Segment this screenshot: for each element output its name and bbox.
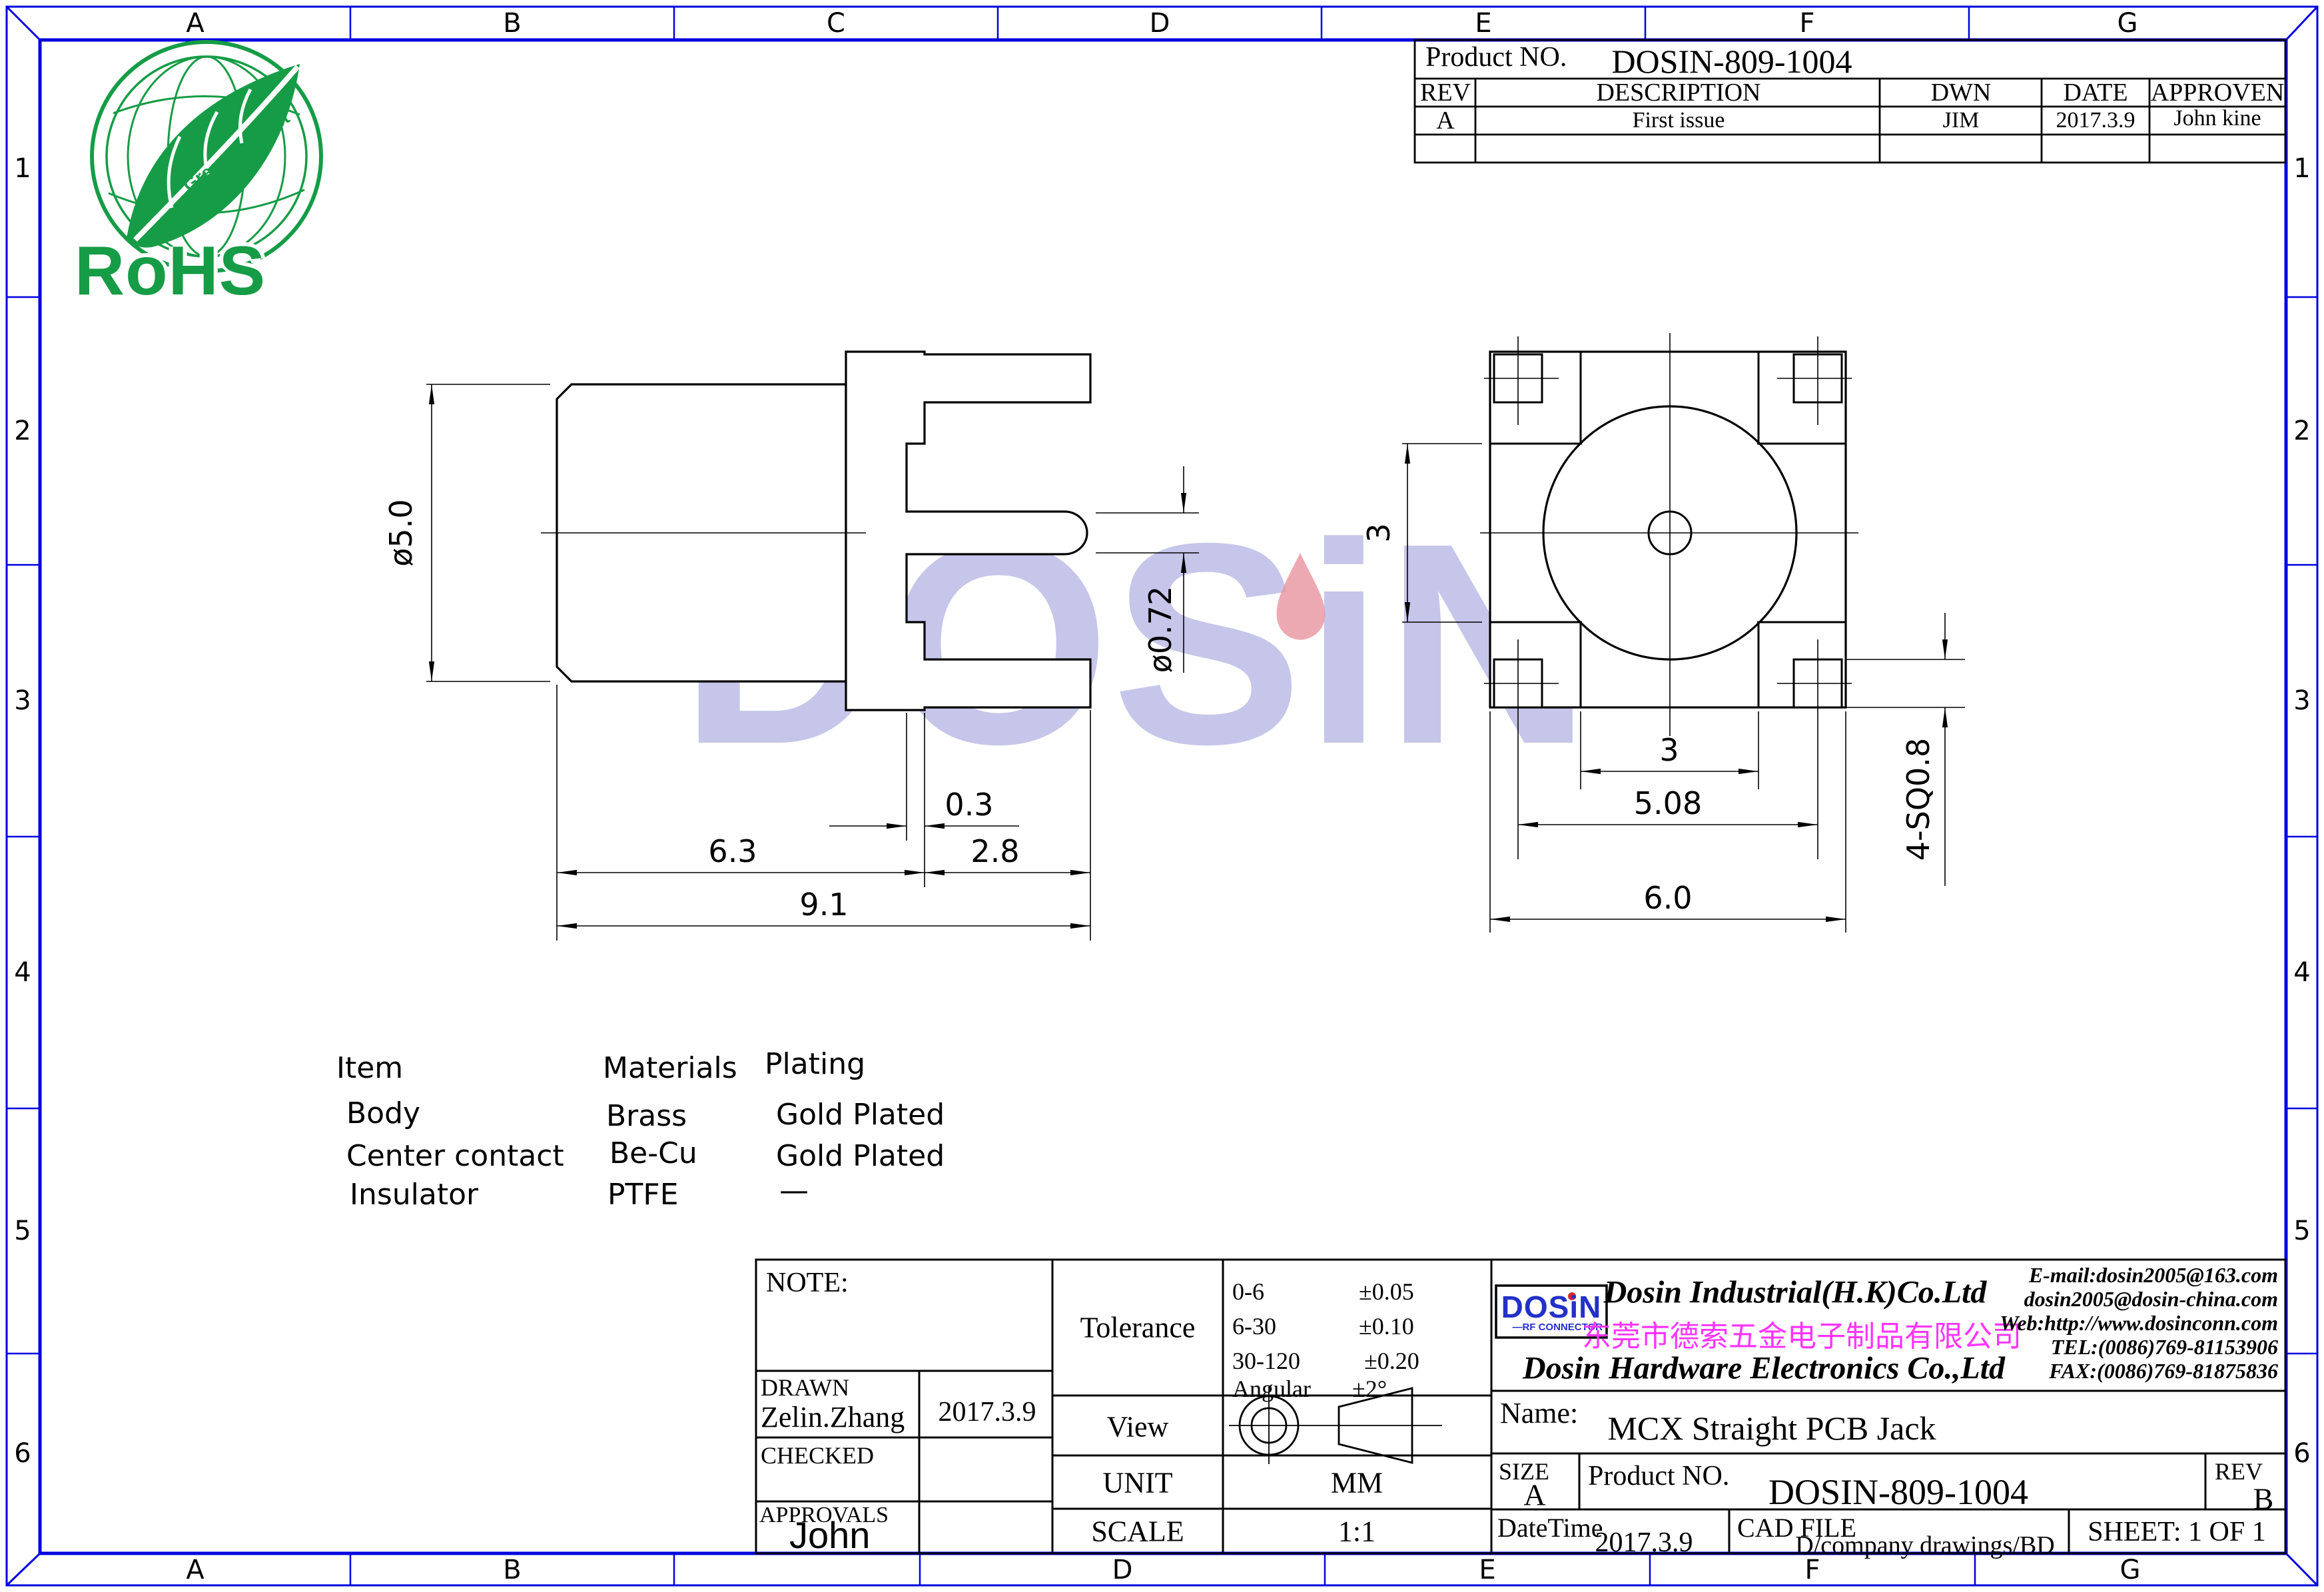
flange-and-pins	[846, 352, 1090, 710]
datetime-value: 2017.3.9	[1595, 1527, 1693, 1559]
company-name-en1: Dosin Industrial(H.K)Co.Ltd	[1604, 1274, 1987, 1311]
materials-insulator-plating: —	[779, 1174, 809, 1208]
grid-label-left-6: 6	[14, 1438, 31, 1469]
grid-label-bottom-d: D	[1112, 1555, 1133, 1585]
scale-label: SCALE	[1091, 1515, 1184, 1549]
contact-email-1: E-mail:dosin2005@163.com	[1992, 1263, 2278, 1288]
grid-label-bottom-g: G	[2120, 1555, 2141, 1585]
materials-body-plating: Gold Plated	[776, 1098, 945, 1132]
unit-value: MM	[1331, 1466, 1383, 1500]
tol-range-4: Angular	[1232, 1375, 1311, 1403]
side-view	[426, 352, 1199, 941]
approvals-name: John	[789, 1513, 870, 1557]
drawn-name: Zelin.Zhang	[761, 1400, 905, 1434]
flame-icon	[1277, 553, 1326, 639]
dim-label-h3: 3	[1659, 732, 1679, 768]
rev-row-rev: A	[1436, 106, 1454, 135]
rev-header-description: DESCRIPTION	[1596, 78, 1760, 107]
unit-label: UNIT	[1102, 1466, 1172, 1500]
contact-tel: TEL:(0086)769-81153906	[1992, 1335, 2278, 1360]
company-name-cn: 东莞市德索五金电子制品有限公司	[1582, 1312, 2022, 1355]
grid-label-top-b: B	[503, 8, 521, 39]
rev-product-label: Product NO.	[1425, 41, 1567, 73]
grid-label-top-f: F	[1799, 8, 1814, 39]
materials-header-item: Item	[336, 1051, 403, 1085]
contact-web: Web:http://www.dosinconn.com	[1992, 1311, 2278, 1336]
rohs-title: RoHS	[75, 232, 266, 311]
materials-contact-item: Center contact	[346, 1139, 564, 1173]
checked-label: CHECKED	[761, 1441, 874, 1469]
dim-v3	[1402, 444, 1482, 622]
dim-label-03: 0.3	[945, 787, 993, 823]
cad-file-value: D/company drawings/BD	[1795, 1531, 2054, 1560]
dim-label-dia5: ø5.0	[383, 499, 419, 566]
rev-header-approven: APPROVEN	[2151, 78, 2285, 107]
rev-row-date: 2017.3.9	[2056, 108, 2135, 133]
dim-label-28: 2.8	[970, 833, 1019, 869]
rev-product-value: DOSIN-809-1004	[1611, 42, 1852, 81]
tol-value-1: ±0.05	[1359, 1278, 1414, 1306]
materials-header-plating: Plating	[765, 1047, 865, 1081]
rev-value: B	[2253, 1481, 2274, 1517]
rev-header-dwn: DWN	[1931, 78, 1992, 107]
grid-label-top-e: E	[1475, 8, 1491, 39]
tol-value-4: ±2°	[1352, 1375, 1387, 1403]
materials-header-materials: Materials	[603, 1051, 737, 1085]
grid-label-bottom-b: B	[503, 1555, 521, 1585]
grid-separators-bottom	[350, 1553, 1975, 1585]
view-label: View	[1107, 1410, 1169, 1444]
rev-header-date: DATE	[2063, 78, 2128, 107]
grid-label-left-4: 4	[14, 957, 31, 988]
grid-label-right-2: 2	[2293, 416, 2310, 446]
materials-body-material: Brass	[606, 1099, 687, 1133]
grid-label-top-g: G	[2118, 8, 2138, 39]
tol-value-3: ±0.20	[1364, 1347, 1419, 1375]
grid-label-top-c: C	[827, 8, 845, 39]
grid-label-left-1: 1	[14, 153, 31, 184]
grid-label-left-3: 3	[14, 685, 31, 716]
datetime-label: DateTime	[1497, 1512, 1603, 1543]
product-no-value: DOSIN-809-1004	[1768, 1471, 2028, 1513]
dim-label-dia072: ø0.72	[1142, 586, 1178, 673]
grid-label-top-d: D	[1150, 8, 1170, 39]
tol-range-2: 6-30	[1232, 1312, 1276, 1340]
tol-range-3: 30-120	[1232, 1347, 1300, 1375]
note-label: NOTE:	[766, 1267, 849, 1299]
grid-label-bottom-a: A	[186, 1555, 204, 1585]
grid-label-bottom-e: E	[1479, 1555, 1495, 1585]
dim-label-63: 6.3	[708, 833, 757, 869]
tol-value-2: ±0.10	[1359, 1312, 1414, 1340]
name-value: MCX Straight PCB Jack	[1607, 1409, 1936, 1447]
materials-insulator-material: PTFE	[607, 1178, 679, 1212]
sheet-label: SHEET: 1 OF 1	[2088, 1516, 2265, 1548]
contact-email-2: dosin2005@dosin-china.com	[1992, 1287, 2278, 1312]
materials-body-item: Body	[346, 1096, 420, 1130]
dim-label-sq08: 4-SQ0.8	[1900, 738, 1936, 861]
rev-row-dwn: JIM	[1943, 108, 1980, 133]
size-value: A	[1523, 1477, 1545, 1513]
rev-header-rev: REV	[1420, 78, 1471, 107]
rev-row-approven: John kine	[2173, 106, 2261, 131]
engineering-drawing-sheet: DOSiN	[0, 0, 2324, 1592]
drawn-date: 2017.3.9	[939, 1396, 1036, 1428]
grid-label-right-4: 4	[2293, 957, 2310, 988]
name-label: Name:	[1500, 1396, 1578, 1430]
front-view	[1402, 333, 1965, 933]
materials-insulator-item: Insulator	[350, 1178, 478, 1212]
grid-label-right-3: 3	[2293, 685, 2310, 716]
contact-fax: FAX:(0086)769-81875836	[1992, 1359, 2278, 1384]
grid-label-top-a: A	[186, 8, 204, 39]
grid-label-left-5: 5	[14, 1216, 31, 1246]
company-name-en2: Dosin Hardware Electronics Co.,Ltd	[1523, 1350, 2005, 1387]
dim-label-60: 6.0	[1643, 880, 1692, 916]
dim-label-91: 9.1	[799, 887, 848, 923]
grid-label-right-6: 6	[2293, 1438, 2310, 1469]
grid-label-right-1: 1	[2293, 153, 2310, 184]
dim-label-508: 5.08	[1634, 785, 1702, 821]
product-no-label: Product NO.	[1588, 1460, 1729, 1492]
materials-contact-plating: Gold Plated	[776, 1139, 945, 1173]
grid-label-left-2: 2	[14, 416, 31, 446]
tolerance-label: Tolerance	[1080, 1311, 1196, 1345]
rev-row-description: First issue	[1633, 108, 1725, 133]
dim-label-v3: 3	[1361, 523, 1397, 542]
drawn-label: DRAWN	[761, 1374, 849, 1401]
grid-label-right-5: 5	[2293, 1216, 2310, 1246]
scale-value: 1:1	[1338, 1515, 1375, 1549]
materials-contact-material: Be-Cu	[609, 1136, 697, 1170]
dim-dia5	[426, 384, 550, 681]
tol-range-1: 0-6	[1232, 1278, 1264, 1306]
